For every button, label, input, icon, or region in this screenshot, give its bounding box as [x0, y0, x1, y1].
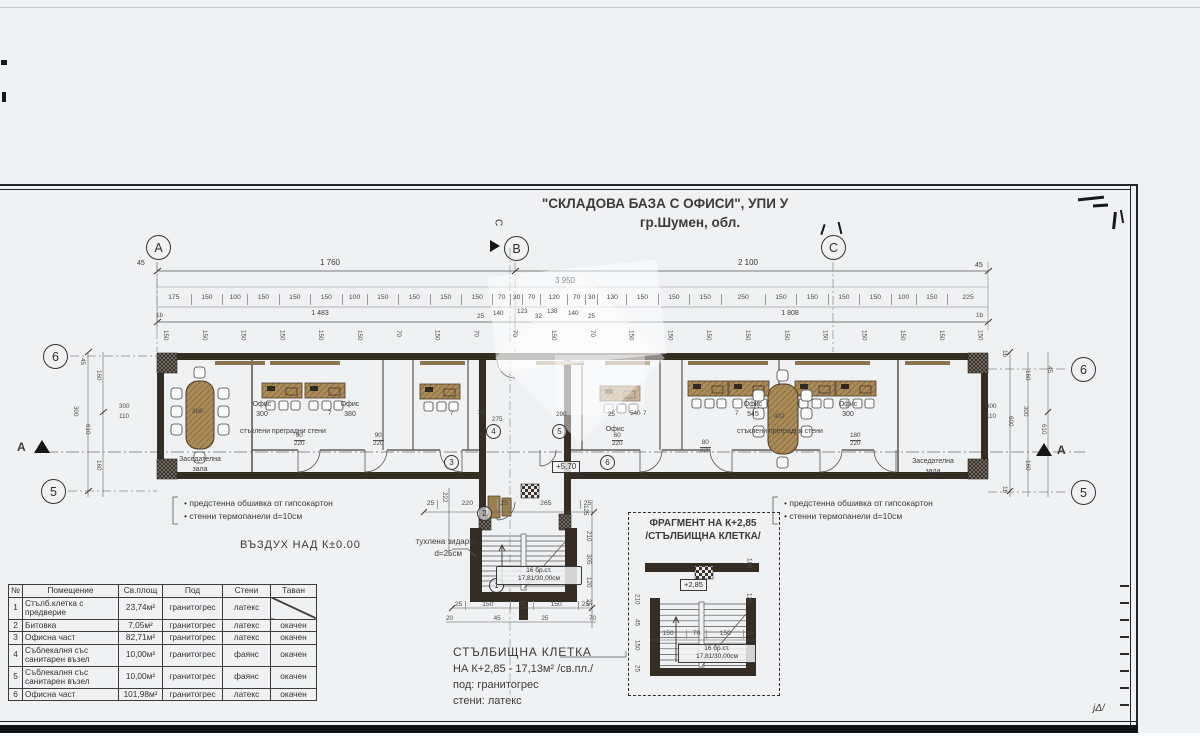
- stair-dim: 265: [512, 500, 581, 509]
- cell-room: Стълб.клетка с предверие: [23, 597, 119, 619]
- plan-dim-25b: 25: [608, 411, 615, 418]
- dim-left-610: 610: [84, 424, 91, 435]
- col-number: №: [9, 585, 23, 598]
- col-room: Помещение: [23, 585, 119, 598]
- cell-walls: фаянс: [223, 644, 271, 666]
- dim-span-left: 1 760: [280, 258, 380, 267]
- note-drywall-right: предстенна обшивка от гипсокартон: [784, 498, 933, 508]
- plan-dim-7b: 7: [450, 410, 454, 417]
- drawing-frame-top-outer: [0, 184, 1137, 186]
- axis-circle-5-right: 5: [1071, 480, 1096, 505]
- dim-right-160a: 160: [1024, 370, 1031, 381]
- scanned-floor-plan-page: { "title": { "line1": "\"СКЛАДОВА БАЗА С…: [0, 0, 1200, 736]
- room-number-label: 6: [605, 458, 609, 467]
- dim-segment: 150: [797, 294, 828, 305]
- scan-page-edge-line: [0, 7, 1200, 8]
- fragment-steps-box: 16 бр.ст. 17,81/30,00см: [678, 644, 756, 663]
- section-a-marker-left: [34, 440, 50, 453]
- room-number-4: 4: [486, 424, 501, 439]
- cell-number: 6: [9, 688, 23, 701]
- room-office-5-dim: 300: [818, 411, 878, 419]
- stair-dim: 25: [498, 500, 512, 509]
- axis-label-5: 5: [50, 485, 57, 499]
- dim-rotated: 150: [938, 330, 945, 348]
- fragment-dim: 25: [634, 665, 641, 672]
- stair-caption-title: СТЪЛБИЩНА КЛЕТКА: [453, 646, 592, 660]
- plan-dim-7a: 7: [328, 410, 332, 417]
- dim-segment-row: 1751501001501501501001501501501507030701…: [157, 294, 988, 305]
- fragment-steps-count: 16 бр.ст.: [682, 645, 752, 653]
- cell-room: Офисна част: [23, 632, 119, 645]
- dim-1808: 1 808: [738, 310, 842, 318]
- dim-left-160b: 160: [95, 460, 102, 471]
- section-a-letter-right: А: [1057, 444, 1066, 458]
- section-a-marker-right: [1036, 443, 1052, 456]
- cell-floor: гранитогрес: [163, 644, 223, 666]
- scan-mark: [1, 60, 7, 65]
- cell-area: 10,00м²: [119, 666, 163, 688]
- frame-tick: [1120, 619, 1129, 621]
- stair-bottom-dims-1: 251507015025: [452, 601, 592, 610]
- stair-bottom-dims-2: 20452570: [446, 615, 596, 624]
- room-number-6: 6: [600, 455, 615, 470]
- dim-inner-300-left: 300: [119, 403, 130, 410]
- scan-mark: [2, 92, 6, 102]
- door-width: 80: [702, 440, 709, 447]
- axis-circle-a: А: [146, 235, 171, 260]
- room-office-2-name: Офис: [341, 401, 360, 408]
- dim-left-160a: 160: [95, 370, 102, 381]
- cell-ceiling: [271, 597, 317, 619]
- dim-rotated: 150: [899, 330, 906, 348]
- room-hall-left-1: Заседателна: [160, 456, 240, 464]
- table-row: 3 Офисна част 82,71м² гранитогрес латекс…: [9, 632, 317, 645]
- col-walls: Стени: [223, 585, 271, 598]
- frame-tick: [1120, 653, 1129, 655]
- dim-segment: 150: [311, 294, 342, 305]
- dim-1483: 1 483: [268, 310, 372, 318]
- dim-segment: 150: [829, 294, 860, 305]
- dim-1b-left: 1b: [156, 312, 163, 319]
- dim-segment: 70: [568, 294, 585, 305]
- dim-right-300: 300: [1022, 406, 1029, 417]
- elevation-marker-570: +5,70: [552, 461, 580, 473]
- axis-label-c: С: [829, 241, 838, 255]
- cell-area: 101,98м²: [119, 688, 163, 701]
- door-height: 220: [294, 440, 305, 448]
- door-width: 90: [296, 433, 303, 440]
- room-office-1: Офис: [232, 401, 292, 409]
- stair-dim: 20: [446, 615, 453, 624]
- fragment-title-2: /СТЪЛБИЩНА КЛЕТКА/: [634, 531, 772, 543]
- dim-right-45: 45: [1046, 366, 1053, 373]
- stair-dim: 70: [511, 601, 535, 610]
- cell-walls: латекс: [223, 632, 271, 645]
- frame-tick: [1120, 602, 1129, 604]
- frame-tick: [1120, 687, 1129, 689]
- dim-inner-300-right: 300: [986, 403, 997, 410]
- dim-segment: 100: [223, 294, 248, 305]
- room-office-4: Офис: [723, 401, 783, 409]
- door-height: 220: [373, 440, 384, 448]
- section-a-letter-left: А: [17, 441, 26, 455]
- col-ceiling: Таван: [271, 585, 317, 598]
- cell-ceiling: окачен: [271, 666, 317, 688]
- room-number-label: 5: [557, 427, 561, 436]
- dim-sub-25: 25: [477, 313, 484, 320]
- stair-dim: 150: [534, 601, 579, 610]
- note-drywall-left: предстенна обшивка от гипсокартон: [184, 498, 333, 508]
- cell-walls: латекс: [223, 597, 271, 619]
- cell-room: Битовка: [23, 619, 119, 632]
- plan-dim-290: 290: [556, 411, 567, 418]
- dim-right-1b-bot: 1b: [1001, 486, 1008, 493]
- cell-floor: гранитогрес: [163, 597, 223, 619]
- dim-rotated: 150: [317, 330, 324, 348]
- dim-segment: 150: [627, 294, 658, 305]
- dim-segment: 150: [431, 294, 462, 305]
- dim-segment: 150: [248, 294, 279, 305]
- cell-ceiling: окачен: [271, 632, 317, 645]
- fragment-bottom-dims: 1507015025: [650, 630, 756, 639]
- dim-segment: 150: [462, 294, 493, 305]
- door-width: 60: [614, 433, 621, 440]
- cell-number: 1: [9, 597, 23, 619]
- dim-rotated: 70: [395, 330, 402, 348]
- dim-rotated: 150: [240, 330, 247, 348]
- stair-dim-120: 120: [585, 577, 592, 588]
- plan-dim-25a: 25: [478, 409, 485, 416]
- dim-45-right: 45: [975, 262, 983, 270]
- table-row: 4 Съблекалня със санитарен възел 10,00м²…: [9, 644, 317, 666]
- dim-segment: 150: [860, 294, 891, 305]
- cell-floor: гранитогрес: [163, 688, 223, 701]
- fragment-dim: 125: [746, 593, 753, 604]
- dim-right-160b: 160: [1024, 460, 1031, 471]
- cell-area: 23,74м²: [119, 597, 163, 619]
- stair-dim-125: 125: [582, 505, 589, 516]
- door-height: 220: [850, 440, 861, 448]
- table-row: 5 Съблекалня със санитарен възел 10,00м²…: [9, 666, 317, 688]
- fragment-dim: 210: [634, 594, 641, 605]
- frame-tick: [1120, 704, 1129, 706]
- room-hall-right-2: зала: [893, 468, 973, 476]
- room-number-label: 4: [491, 427, 495, 436]
- dim-rotated: 150: [666, 330, 673, 348]
- plan-dim-7d: 7: [735, 410, 739, 417]
- dim-span-right: 2 100: [698, 258, 798, 267]
- dim-inner-110-right: 110: [986, 413, 996, 420]
- note-masonry-1: тухлена зидария: [392, 537, 478, 546]
- dim-segment: 100: [892, 294, 917, 305]
- room-office-5: Офис: [818, 401, 878, 409]
- stair-caption-line4: стени: латекс: [453, 695, 522, 708]
- dim-rotated: 150: [628, 330, 635, 348]
- axis-label-6: 6: [52, 350, 59, 364]
- axis-circle-5-left: 5: [41, 479, 66, 504]
- cell-floor: гранитогрес: [163, 632, 223, 645]
- room-office-1-dim: 300: [232, 411, 292, 419]
- fragment-left-dims: 2104515025: [632, 594, 642, 672]
- cell-ceiling: окачен: [271, 688, 317, 701]
- cell-number: 4: [9, 644, 23, 666]
- drawing-title-line1: "СКЛАДОВА БАЗА С ОФИСИ", УПИ У: [505, 196, 825, 212]
- dim-sub-140b: 140: [568, 310, 579, 317]
- dim-45-left: 45: [137, 260, 145, 268]
- dim-sub-123: 123: [517, 308, 528, 315]
- dim-rotated: 150: [356, 330, 363, 348]
- cell-room: Офисна част: [23, 688, 119, 701]
- col-area: Св.площ: [119, 585, 163, 598]
- dim-rotated: 150: [744, 330, 751, 348]
- room-number-label: 2: [482, 509, 486, 518]
- dim-rotated: 70: [472, 330, 479, 348]
- section-c-letter: С: [492, 219, 504, 226]
- plan-dim-275: 275: [492, 416, 503, 423]
- fragment-dim: 70: [687, 630, 707, 639]
- fragment-elevation-285: +2,85: [680, 579, 707, 591]
- dim-segment: 120: [541, 294, 569, 305]
- cell-floor: гранитогрес: [163, 619, 223, 632]
- table-header-row: № Помещение Св.площ Под Стени Таван: [9, 585, 317, 598]
- dim-right-610: 610: [1040, 424, 1047, 435]
- note-air-above: ВЪЗДУХ НАД К±0.00: [240, 539, 361, 552]
- stair-dim: 150: [466, 601, 511, 610]
- dim-segment: 70: [523, 294, 540, 305]
- dim-segment: 150: [690, 294, 721, 305]
- stair-caption-line2: НА К+2,85 - 17,13м² /св.пл./: [453, 663, 593, 676]
- cell-walls: латекс: [223, 619, 271, 632]
- stair-dim: 25: [579, 601, 592, 610]
- cell-ceiling: окачен: [271, 619, 317, 632]
- dim-segment: 150: [368, 294, 399, 305]
- dim-rotated: 150: [434, 330, 441, 348]
- table-row: 6 Офисна част 101,98м² гранитогрес латек…: [9, 688, 317, 701]
- section-c-arrow-icon: [490, 240, 500, 252]
- drawing-frame-right-outer: [1136, 184, 1138, 726]
- fragment-dim: 150: [650, 630, 687, 639]
- drawing-frame-right-inner: [1130, 185, 1131, 725]
- cell-walls: фаянс: [223, 666, 271, 688]
- drawing-frame-top-inner: [0, 189, 1131, 190]
- dim-segment: 225: [948, 294, 988, 305]
- stair-steps-count: 16 бр.ст.: [500, 567, 578, 575]
- dim-segment: 30: [586, 294, 598, 305]
- cell-area: 7,05м²: [119, 619, 163, 632]
- fragment-title-1: ФРАГМЕНТ НА К+2,85: [634, 518, 772, 530]
- room-office-2: Офис: [320, 401, 380, 409]
- stair-dim: 45: [494, 615, 501, 624]
- dim-segment: 30: [511, 294, 523, 305]
- note-thermopanels-right: стенни термопанели d=10см: [784, 511, 902, 521]
- glass-partition-note-right: стъклени преградни стени: [737, 428, 823, 436]
- stair-dim: 25: [452, 601, 466, 610]
- dim-rotated: 150: [860, 330, 867, 348]
- room-office-5-name: Офис: [839, 401, 858, 408]
- axis-circle-6-left: 6: [43, 344, 68, 369]
- drawing-frame-bottom-inner: [0, 721, 1138, 722]
- cell-number: 3: [9, 632, 23, 645]
- scan-watermark: [555, 355, 645, 415]
- dim-segment: 100: [343, 294, 368, 305]
- drawing-frame-bottom-outer: [0, 725, 1138, 733]
- stair-dim-222: 222: [441, 492, 448, 503]
- dim-sub-32: 32: [535, 313, 542, 320]
- dim-left-300: 300: [72, 406, 79, 417]
- dim-rotated-row: 1501501501501501507015070701507015015015…: [162, 330, 984, 348]
- stair-dim: 25: [541, 615, 548, 624]
- fragment-dim: 150: [634, 640, 641, 651]
- dim-rotated: 150: [783, 330, 790, 348]
- dim-segment: 250: [722, 294, 766, 305]
- table-row: 1 Стълб.клетка с предверие 23,74м² грани…: [9, 597, 317, 619]
- plan-dim-7c: 7: [643, 410, 647, 417]
- room-office-3-dim: 540: [630, 410, 641, 417]
- dim-segment: 150: [659, 294, 690, 305]
- dim-segment: 150: [766, 294, 797, 305]
- cell-walls: латекс: [223, 688, 271, 701]
- door-width: 180: [850, 433, 861, 440]
- table-tag-386: 386: [192, 408, 203, 415]
- dim-rotated: 150: [162, 330, 169, 348]
- dim-sub-138: 138: [547, 308, 558, 315]
- axis-label-b: В: [512, 242, 520, 256]
- dim-rotated: 150: [822, 330, 829, 348]
- dim-span-total: 3 950: [515, 276, 615, 285]
- door-height: 220: [700, 447, 711, 455]
- frame-tick: [1120, 636, 1129, 638]
- room-number-label: 3: [449, 458, 453, 467]
- dim-segment: 70: [493, 294, 510, 305]
- cell-ceiling: окачен: [271, 644, 317, 666]
- handwritten-scribble: јΔ/: [1093, 703, 1105, 715]
- fragment-dim: 183: [746, 558, 753, 569]
- room-number-5: 5: [552, 424, 567, 439]
- stair-top-dims: 252202526525: [424, 500, 594, 509]
- cell-number: 5: [9, 666, 23, 688]
- drawing-title-line2: гр.Шумен, обл.: [560, 215, 820, 231]
- door-size-180-220: 180220: [850, 433, 861, 447]
- dim-right-1b-top: 1b: [1001, 350, 1008, 357]
- dim-inner-110-left: 110: [119, 413, 129, 420]
- dim-segment: 150: [917, 294, 948, 305]
- dim-sub-140: 140: [493, 310, 504, 317]
- door-size-60-220: 60220: [612, 433, 623, 447]
- room-office-1-name: Офис: [253, 401, 272, 408]
- door-size-90-220-a: 90220: [294, 433, 305, 447]
- axis-circle-b: В: [504, 236, 529, 261]
- frame-tick: [1120, 670, 1129, 672]
- axis-label-6: 6: [1080, 363, 1087, 377]
- col-floor: Под: [163, 585, 223, 598]
- stair-steps-box: 16 бр.ст. 17,81/30,00см: [496, 566, 582, 585]
- fragment-right-dims: 183125: [744, 558, 754, 604]
- dim-sub-25b: 25: [588, 313, 595, 320]
- room-office-4-name: Офис: [744, 401, 763, 408]
- dim-rotated: 150: [550, 330, 557, 348]
- room-number-3: 3: [444, 455, 459, 470]
- dim-left-45: 45: [79, 358, 86, 365]
- cell-room: Съблекалня със санитарен възел: [23, 644, 119, 666]
- axis-label-a: А: [154, 241, 162, 255]
- door-size-80-220: 80220: [700, 440, 711, 454]
- dim-segment: 175: [157, 294, 192, 305]
- finish-schedule-table: № Помещение Св.площ Под Стени Таван 1 Ст…: [8, 584, 317, 701]
- table-row: 2 Битовка 7,05м² гранитогрес латекс окач…: [9, 619, 317, 632]
- door-height: 220: [612, 440, 623, 448]
- cell-area: 82,71м²: [119, 632, 163, 645]
- dim-rotated: 70: [511, 330, 518, 348]
- cell-room: Съблекалня със санитарен възел: [23, 666, 119, 688]
- dim-1b-right: 1b: [976, 312, 983, 319]
- fragment-tread-size: 17,81/30,00см: [682, 653, 752, 661]
- frame-tick: [1120, 585, 1129, 587]
- stair-dim: 70: [589, 615, 596, 624]
- axis-label-5: 5: [1080, 486, 1087, 500]
- dim-rotated: 150: [977, 330, 984, 348]
- stair-caption-line3: под: гранитогрес: [453, 679, 539, 692]
- cell-number: 2: [9, 619, 23, 632]
- fragment-dim: 25: [744, 630, 756, 639]
- stair-tread-size: 17,81/30,00см: [500, 575, 578, 583]
- door-width: 90: [375, 433, 382, 440]
- dim-segment: 150: [399, 294, 430, 305]
- stair-dim: 25: [424, 500, 438, 509]
- axis-circle-6-right: 6: [1071, 357, 1096, 382]
- dim-rotated: 150: [278, 330, 285, 348]
- stair-dim-305: 305: [585, 554, 592, 565]
- axis-circle-c: С: [821, 235, 846, 260]
- room-hall-right-1: Заседателна: [893, 458, 973, 466]
- dim-right-600: 600: [1007, 416, 1014, 427]
- dim-rotated: 70: [589, 330, 596, 348]
- table-tag-402: 402: [774, 413, 785, 420]
- dim-rotated: 150: [201, 330, 208, 348]
- dim-rotated: 150: [705, 330, 712, 348]
- cell-area: 10,00м²: [119, 644, 163, 666]
- room-hall-left-2: зала: [160, 466, 240, 474]
- fragment-dim: 150: [707, 630, 744, 639]
- dim-segment: 150: [280, 294, 311, 305]
- fragment-dim: 45: [634, 619, 641, 626]
- dim-segment: 130: [598, 294, 627, 305]
- cell-floor: гранитогрес: [163, 666, 223, 688]
- door-size-90-220-b: 90220: [373, 433, 384, 447]
- note-masonry-2: d=25см: [392, 549, 462, 558]
- dim-segment: 150: [192, 294, 223, 305]
- note-thermopanels-left: стенни термопанели d=10см: [184, 511, 302, 521]
- stair-dim-210: 210: [585, 531, 592, 542]
- glass-partition-note-left: стъклени преградни стени: [240, 428, 326, 436]
